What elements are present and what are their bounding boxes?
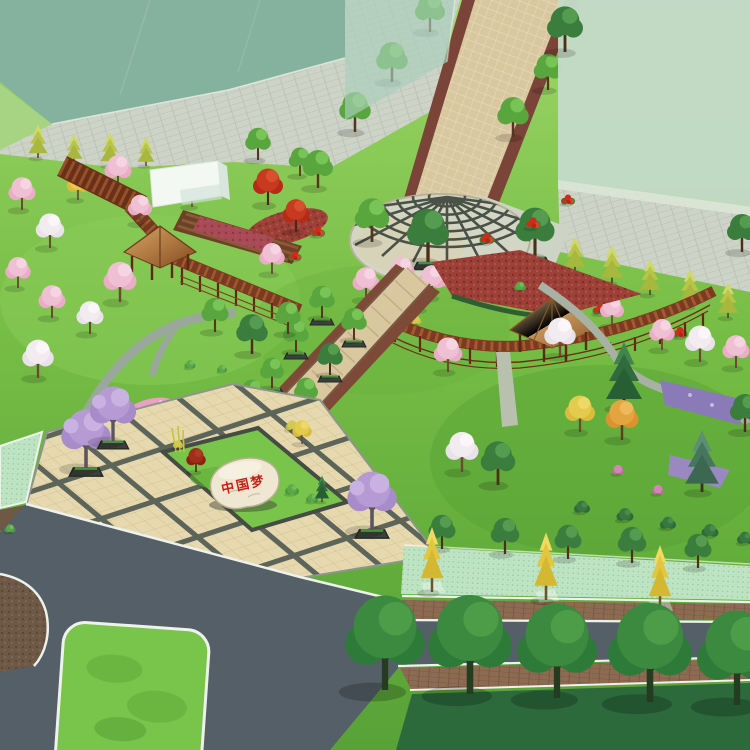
flower-dot <box>710 403 714 407</box>
flower-dot <box>688 393 692 397</box>
traffic-island <box>54 621 210 750</box>
ghost-building-right <box>558 0 750 206</box>
park-render-canvas: 中国梦 <box>0 0 750 750</box>
landscape-rendering: 中国梦 <box>0 0 750 750</box>
